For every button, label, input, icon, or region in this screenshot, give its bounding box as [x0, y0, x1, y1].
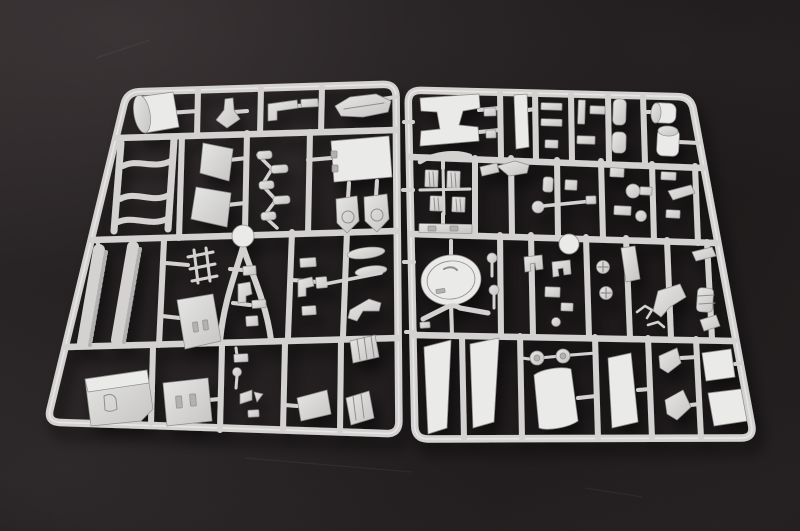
- sprue-runner: [601, 161, 603, 238]
- sprue-photo: [0, 0, 800, 531]
- sprue-runner: [557, 160, 558, 236]
- right-sprue: [403, 90, 752, 439]
- sprue-runner: [735, 363, 742, 364]
- sprue-part: [452, 197, 466, 212]
- sprue-part: [346, 391, 374, 425]
- sprue-part: [202, 320, 208, 330]
- background-scratch: [245, 458, 412, 472]
- sprue-part: [541, 119, 562, 127]
- sprue-runner: [308, 132, 310, 233]
- sprue-part: [612, 132, 627, 153]
- sprue-part: [234, 354, 248, 363]
- sprue-part: [614, 206, 631, 216]
- sprue-part: [636, 211, 647, 222]
- sprue-part: [176, 396, 183, 408]
- sprue-part: [552, 260, 571, 277]
- sprue-part: [702, 349, 735, 381]
- sprue-runner: [586, 237, 589, 337]
- sprue-part: [420, 322, 430, 329]
- left-sprue: [49, 84, 398, 433]
- sprue-part: [700, 315, 720, 331]
- sprue-part: [120, 195, 169, 199]
- sprue-part: [123, 161, 171, 166]
- sprue-part: [428, 226, 436, 231]
- sprue-runner: [451, 304, 452, 334]
- sprue-runner: [162, 316, 180, 318]
- sprue-part: [248, 410, 259, 418]
- sprue-part: [534, 368, 578, 429]
- sprue-runner: [321, 87, 322, 132]
- sprue-part: [661, 172, 676, 181]
- sprue-runner: [308, 158, 331, 160]
- sprue-part: [177, 294, 221, 349]
- sprue-part: [200, 143, 233, 181]
- sprue-part: [608, 353, 638, 428]
- sprue-runner: [679, 142, 699, 143]
- sprue-runner: [520, 336, 522, 438]
- sprue-part: [626, 184, 640, 198]
- sprue-part: [240, 390, 252, 404]
- sprue-runner: [578, 396, 596, 398]
- sprue-runner: [571, 94, 572, 160]
- sprue-runner: [343, 231, 347, 336]
- sprue-part: [565, 180, 578, 191]
- sprue-part: [190, 264, 215, 269]
- sprue-part: [118, 219, 167, 222]
- sprue-runner: [159, 240, 164, 345]
- sprue-part: [298, 277, 314, 297]
- sprue-part: [484, 108, 496, 116]
- sprue-part: [613, 99, 627, 125]
- sprue-runner: [117, 130, 396, 138]
- sprue-part: [534, 355, 540, 361]
- sprue-part: [335, 94, 391, 117]
- sprue-part: [254, 392, 263, 402]
- sprue-runner: [340, 343, 341, 431]
- sprue-part: [430, 196, 444, 211]
- sprue-part: [545, 140, 558, 148]
- sprue-part: [252, 300, 267, 309]
- sprue-part: [246, 316, 259, 327]
- sprue-part: [301, 99, 318, 108]
- sprue-runner: [179, 136, 182, 238]
- sprue-part: [302, 306, 317, 316]
- sprue-part: [191, 187, 231, 227]
- sprue-part: [419, 224, 472, 234]
- sprue-part: [543, 177, 554, 193]
- sprue-part: [541, 103, 562, 111]
- sprue-runner: [500, 93, 501, 157]
- sprue-part: [696, 287, 714, 312]
- sprue-runner: [695, 166, 698, 243]
- sprue-part: [364, 194, 389, 232]
- sprue-part: [577, 136, 595, 145]
- sprue-part: [447, 171, 461, 188]
- sprue-part: [486, 130, 496, 138]
- sprue-part: [348, 299, 381, 321]
- sprue-part: [423, 306, 488, 319]
- sprue-part: [543, 201, 592, 206]
- sprue-part: [236, 376, 237, 388]
- sprue-part: [578, 100, 586, 124]
- sprue-part: [331, 136, 392, 182]
- sprue-part: [443, 168, 444, 214]
- sprue-part: [420, 94, 480, 146]
- sprue-runner: [652, 164, 654, 241]
- sprue-part: [297, 390, 331, 421]
- sprue-part: [346, 245, 385, 261]
- sprue-runner: [528, 109, 535, 110]
- sprue-part: [621, 246, 640, 282]
- sprue-runner: [220, 346, 222, 430]
- sprue-runner: [285, 405, 297, 406]
- sprue-part: [273, 195, 291, 204]
- sprue-part: [190, 394, 197, 406]
- sprue-part: [424, 340, 451, 434]
- sprue-part: [257, 150, 273, 159]
- sprue-runner: [348, 183, 349, 198]
- sprue-part: [590, 106, 605, 115]
- sprue-part: [640, 187, 652, 196]
- sprue-part: [168, 140, 174, 229]
- sprue-part: [708, 389, 747, 426]
- sprue-part: [552, 318, 561, 327]
- sprue-part: [561, 303, 573, 311]
- sprue-part: [545, 287, 560, 298]
- sprue-runner: [260, 88, 261, 134]
- sprue-runner: [571, 353, 596, 355]
- sprue-part: [418, 251, 484, 309]
- sprue-part: [425, 170, 439, 187]
- sprue-runner: [376, 181, 377, 196]
- sprue-part: [336, 196, 359, 233]
- sprue-part: [243, 266, 257, 276]
- sprue-part: [271, 164, 289, 173]
- sprue-part: [259, 180, 275, 189]
- sprue-runner: [638, 389, 650, 390]
- sprue-part: [216, 98, 240, 128]
- sprue-part: [238, 282, 252, 303]
- sprue-runner: [233, 303, 250, 305]
- sprue-part: [420, 189, 470, 190]
- sprue-part: [325, 273, 381, 284]
- sprue-part: [261, 211, 277, 220]
- sprue-part: [470, 338, 499, 428]
- sprue-part: [300, 257, 317, 267]
- sprue-part: [188, 252, 213, 257]
- sprue-part: [692, 247, 716, 261]
- injection-knob: [232, 225, 254, 247]
- sprue-part: [480, 163, 499, 176]
- sprue-runner: [245, 133, 247, 230]
- photo-background: Photograph of two light grey injection-m…: [0, 0, 800, 531]
- sprue-part: [610, 168, 624, 178]
- sprue-part: [659, 348, 681, 373]
- sprue-runner: [608, 95, 609, 161]
- sprue-part: [450, 226, 458, 231]
- sprue-part: [666, 210, 680, 219]
- sprue-runner: [283, 344, 285, 430]
- background-scratch: [585, 488, 642, 497]
- sprue-part: [163, 378, 212, 426]
- sprue-part: [514, 94, 529, 149]
- sprue-part: [268, 100, 298, 121]
- sprue-part: [648, 322, 664, 327]
- sprue-runner: [681, 357, 697, 358]
- background-scratch: [96, 40, 150, 58]
- sprue-part: [436, 288, 445, 293]
- sprue-part: [332, 165, 338, 172]
- sprue-runner: [643, 96, 645, 163]
- injection-knob: [559, 234, 579, 254]
- sprue-part: [331, 151, 337, 158]
- sprue-runner: [531, 235, 533, 336]
- sprue-runner: [691, 404, 699, 405]
- sprue-runner: [151, 347, 153, 423]
- sprue-runner: [696, 339, 701, 438]
- sprue-runner: [234, 111, 247, 112]
- sprue-runner: [535, 93, 536, 158]
- sprue-part: [192, 322, 198, 332]
- sprue-runner: [500, 235, 501, 335]
- sprue-runner: [462, 336, 464, 438]
- sprue-part: [560, 353, 566, 359]
- sprue-part: [586, 196, 596, 204]
- sprue-part: [637, 306, 652, 318]
- sprue-runner: [166, 263, 188, 265]
- sprue-runner: [288, 232, 292, 337]
- sprue-part: [668, 185, 695, 200]
- sprue-part: [665, 390, 691, 420]
